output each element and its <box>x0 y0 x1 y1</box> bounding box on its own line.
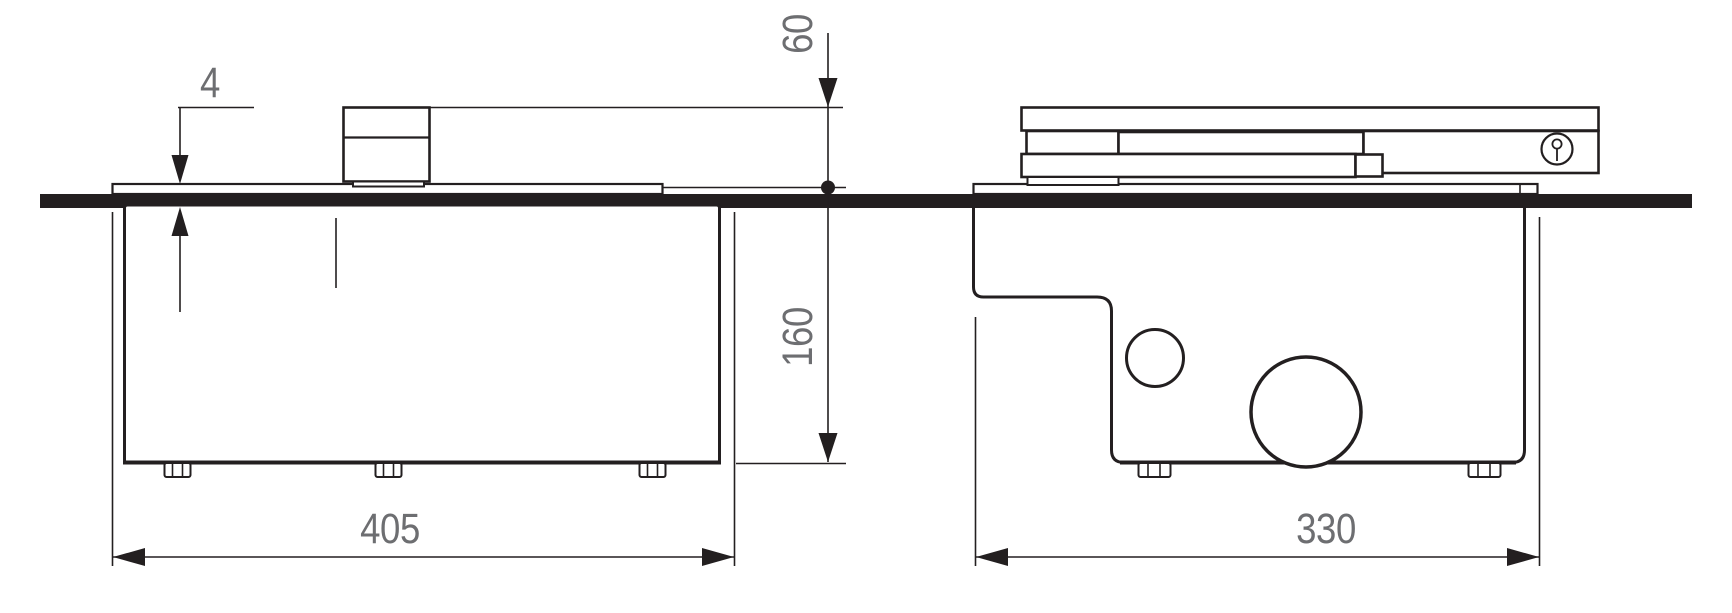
base-strip <box>1028 177 1119 185</box>
dim-label-160: 160 <box>774 307 821 367</box>
second-row-left-plate <box>1027 131 1119 154</box>
third-row-plate <box>1022 154 1356 177</box>
front-foot-right <box>640 463 666 477</box>
connector-tab <box>1356 155 1383 177</box>
installation-drawing: 4 60 160 405 330 <box>0 0 1732 613</box>
keyhole-screw-icon <box>1542 134 1573 165</box>
control-knob-box <box>344 108 430 187</box>
small-port-circle <box>1127 330 1184 387</box>
dim-label-330: 330 <box>1296 505 1356 552</box>
front-view <box>113 108 722 478</box>
side-housing-body <box>974 208 1525 463</box>
dimension-depth-below-worktop: 160 <box>736 187 846 464</box>
front-foot-middle <box>376 463 402 477</box>
side-foot-right <box>1469 463 1501 477</box>
top-assembly <box>1022 108 1599 186</box>
front-housing-body <box>125 205 720 463</box>
second-row-right-plate <box>1119 132 1364 154</box>
side-foot-left <box>1139 463 1171 477</box>
front-foot-left <box>165 463 191 477</box>
side-view <box>974 108 1599 478</box>
dim-label-60: 60 <box>774 14 821 54</box>
dim-label-4: 4 <box>200 59 220 106</box>
dim-label-405: 405 <box>360 505 420 552</box>
drawing-canvas: 4 60 160 405 330 <box>0 0 1732 613</box>
dimension-height-above-worktop: 60 <box>774 14 837 187</box>
top-plate <box>1022 108 1599 131</box>
large-port-circle <box>1251 357 1361 467</box>
